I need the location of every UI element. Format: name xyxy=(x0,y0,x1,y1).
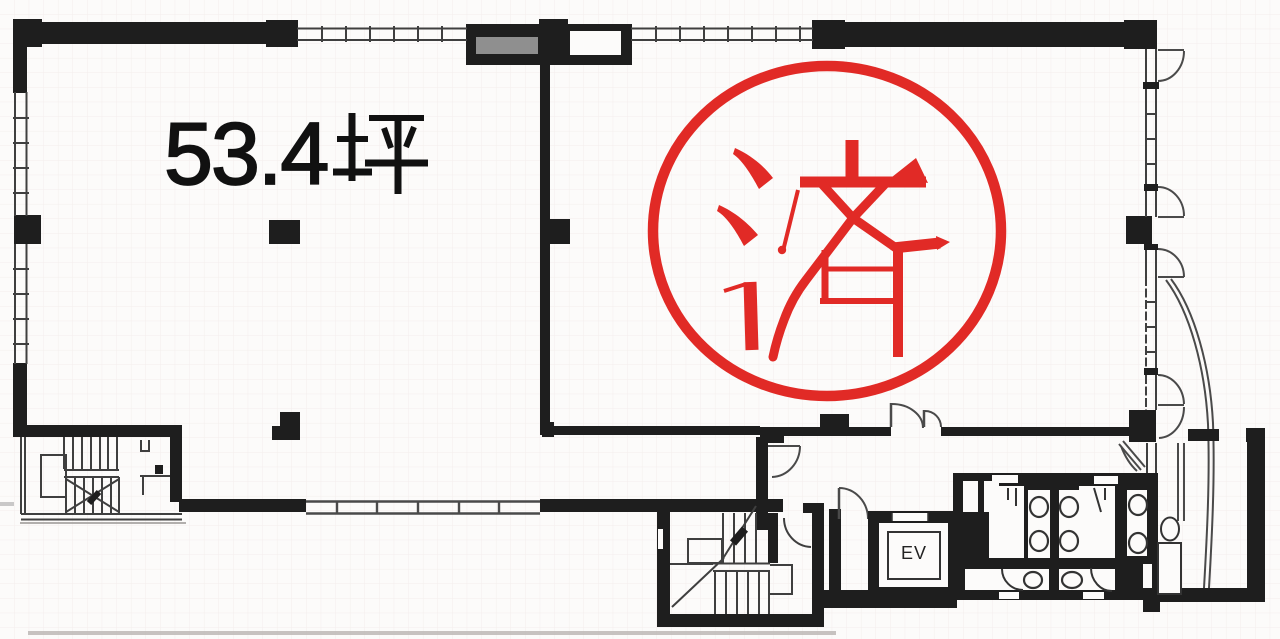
svg-text:53.4: 53.4 xyxy=(164,104,327,203)
svg-text:EV: EV xyxy=(901,543,927,563)
